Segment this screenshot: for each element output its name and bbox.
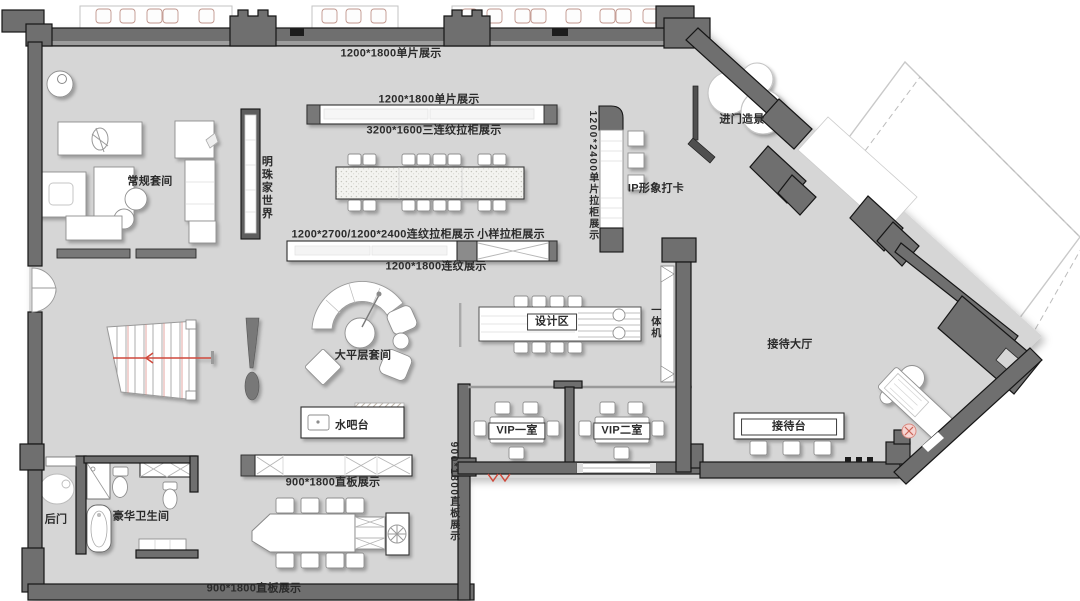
planter-icon	[388, 525, 406, 543]
display-platform-edges	[57, 249, 196, 258]
toilet-icon	[113, 467, 129, 498]
display-cabinet-row2	[287, 241, 557, 261]
back-door-leaf	[46, 457, 76, 466]
glass-partition	[459, 303, 461, 347]
label-display-row2-top: 1200*2700/1200*2400连纹拉柜展示	[292, 229, 475, 242]
label-display-row1-top: 1200*1800单片展示	[378, 94, 479, 107]
label-reception-hall: 接待大厅	[767, 339, 812, 352]
display-cabinet-row1	[307, 105, 557, 124]
floor-plan: 1200*1800单片展示 1200*1800单片展示 3200*1600三连纹…	[0, 0, 1080, 601]
label-all-in-one: 一体机	[648, 305, 660, 340]
single-panel-cabinet	[599, 106, 623, 252]
label-straight-board-bottom: 900*1800直板展示	[207, 583, 302, 596]
bidet-icon	[163, 482, 177, 509]
label-display-top: 1200*1800单片展示	[340, 48, 441, 61]
label-display-row2-bottom: 1200*1800连纹展示	[385, 261, 486, 274]
aio-wall	[676, 262, 691, 472]
top-window-fixtures	[80, 6, 664, 28]
label-reception-desk: 接待台	[741, 419, 837, 436]
label-design-area: 设计区	[527, 314, 577, 331]
label-back-door: 后门	[45, 514, 68, 527]
conference-table	[336, 154, 524, 211]
label-water-bar: 水吧台	[335, 420, 369, 433]
label-vip-room-2: VIP二室	[593, 423, 650, 440]
label-penthouse-suite: 大平层套间	[335, 350, 392, 363]
label-entry-landscape: 进门造景	[719, 114, 764, 127]
label-ip-checkin: IP形象打卡	[628, 183, 684, 196]
bathtub-icon	[87, 505, 111, 552]
left-wall	[28, 42, 42, 266]
label-straight-board-vertical: 900*1800直板展示	[447, 442, 459, 543]
vertical-display-wall	[458, 384, 470, 600]
vip2-slider-door	[577, 463, 656, 473]
no-entry-marker	[902, 424, 916, 438]
vip-partition-wall	[565, 387, 574, 472]
straight-board-cabinet-left	[241, 455, 412, 476]
aio-machine	[661, 266, 674, 382]
label-pearl-world: 明珠家世界	[260, 156, 273, 221]
label-single-panel-cabinet: 1200*2400单片拉柜展示	[586, 111, 598, 242]
ip-checkin-squares	[628, 131, 644, 190]
label-sample-cabinet: 小样拉柜展示	[477, 229, 545, 242]
label-display-row1-bottom: 3200*1600三连纹拉柜展示	[366, 125, 501, 138]
round-column	[47, 71, 73, 97]
label-straight-board-left: 900*1800直板展示	[286, 477, 381, 490]
pearl-display-cabinet	[241, 109, 260, 239]
label-regular-suite: 常规套间	[127, 176, 172, 189]
label-luxury-bathroom: 豪华卫生间	[113, 511, 170, 524]
label-vip-room-1: VIP一室	[488, 423, 545, 440]
